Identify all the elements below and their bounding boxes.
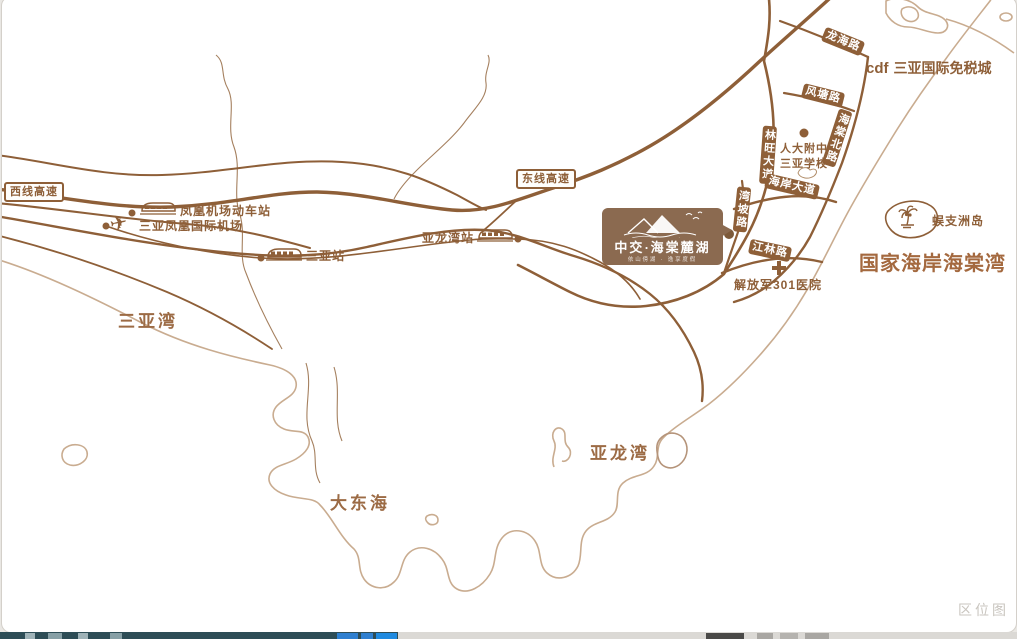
label-national-coast: 国家海岸海棠湾	[859, 247, 1006, 276]
location-map: 西线高速 东线高速 ✈ 凤凰机场动车站 三亚凤凰国际机场 三亚站 亚龙湾站 三亚…	[1, 0, 1017, 633]
label-west-expressway: 西线高速	[4, 182, 64, 202]
taskbar-item	[706, 633, 744, 639]
taskbar-item	[361, 633, 373, 639]
school-line2: 三亚学校	[778, 157, 830, 172]
taskbar-item	[757, 633, 773, 639]
airport-rail-dot	[129, 210, 136, 217]
school-dot	[800, 129, 809, 138]
school-line1: 人大附中	[778, 142, 830, 157]
label-school: 人大附中 三亚学校	[778, 142, 830, 172]
airport-dot	[103, 223, 110, 230]
taskbar-item	[805, 633, 829, 639]
project-logo-card: 中交·海棠麓湖 依山傍湖 · 逸享度假	[602, 208, 723, 265]
label-yalong-bay: 亚龙湾	[590, 439, 650, 464]
taskbar-item	[25, 633, 35, 639]
taskbar-item	[376, 633, 397, 639]
taskbar-item	[78, 633, 88, 639]
watermark-label: 区位图	[958, 600, 1009, 620]
label-airport: 三亚凤凰国际机场	[139, 217, 243, 234]
palm-tree-icon	[899, 206, 917, 227]
taskbar-item	[337, 633, 358, 639]
birds-icon	[686, 212, 702, 219]
taskbar-item	[780, 633, 798, 639]
taskbar-sliver-right	[398, 632, 1017, 639]
rivers	[216, 55, 489, 483]
project-name: 中交·海棠麓湖	[602, 237, 723, 256]
hospital-cross-icon	[772, 261, 786, 275]
project-tagline: 依山傍湖 · 逸享度假	[607, 254, 718, 262]
duty-free-name: 三亚国际免税城	[894, 60, 992, 76]
label-east-expressway: 东线高速	[516, 169, 576, 189]
label-yalong-station: 亚龙湾站	[422, 229, 474, 246]
taskbar-sliver-left	[0, 632, 398, 639]
taskbar-item	[48, 633, 62, 639]
yalong-station-dot	[515, 236, 522, 243]
label-sanya-station: 三亚站	[306, 247, 345, 264]
cdf-logo: cdf	[866, 60, 889, 77]
sanya-station-dot	[258, 255, 265, 262]
label-sanya-bay: 三亚湾	[118, 307, 178, 332]
taskbar-item	[110, 633, 122, 639]
label-wuzhizhou-island: 蜈支洲岛	[932, 212, 984, 229]
label-duty-free: cdf三亚国际免税城	[866, 58, 992, 78]
mountain-logo-icon	[616, 210, 708, 238]
label-hospital: 解放军301医院	[734, 276, 822, 293]
label-dadonghai: 大东海	[330, 489, 390, 514]
